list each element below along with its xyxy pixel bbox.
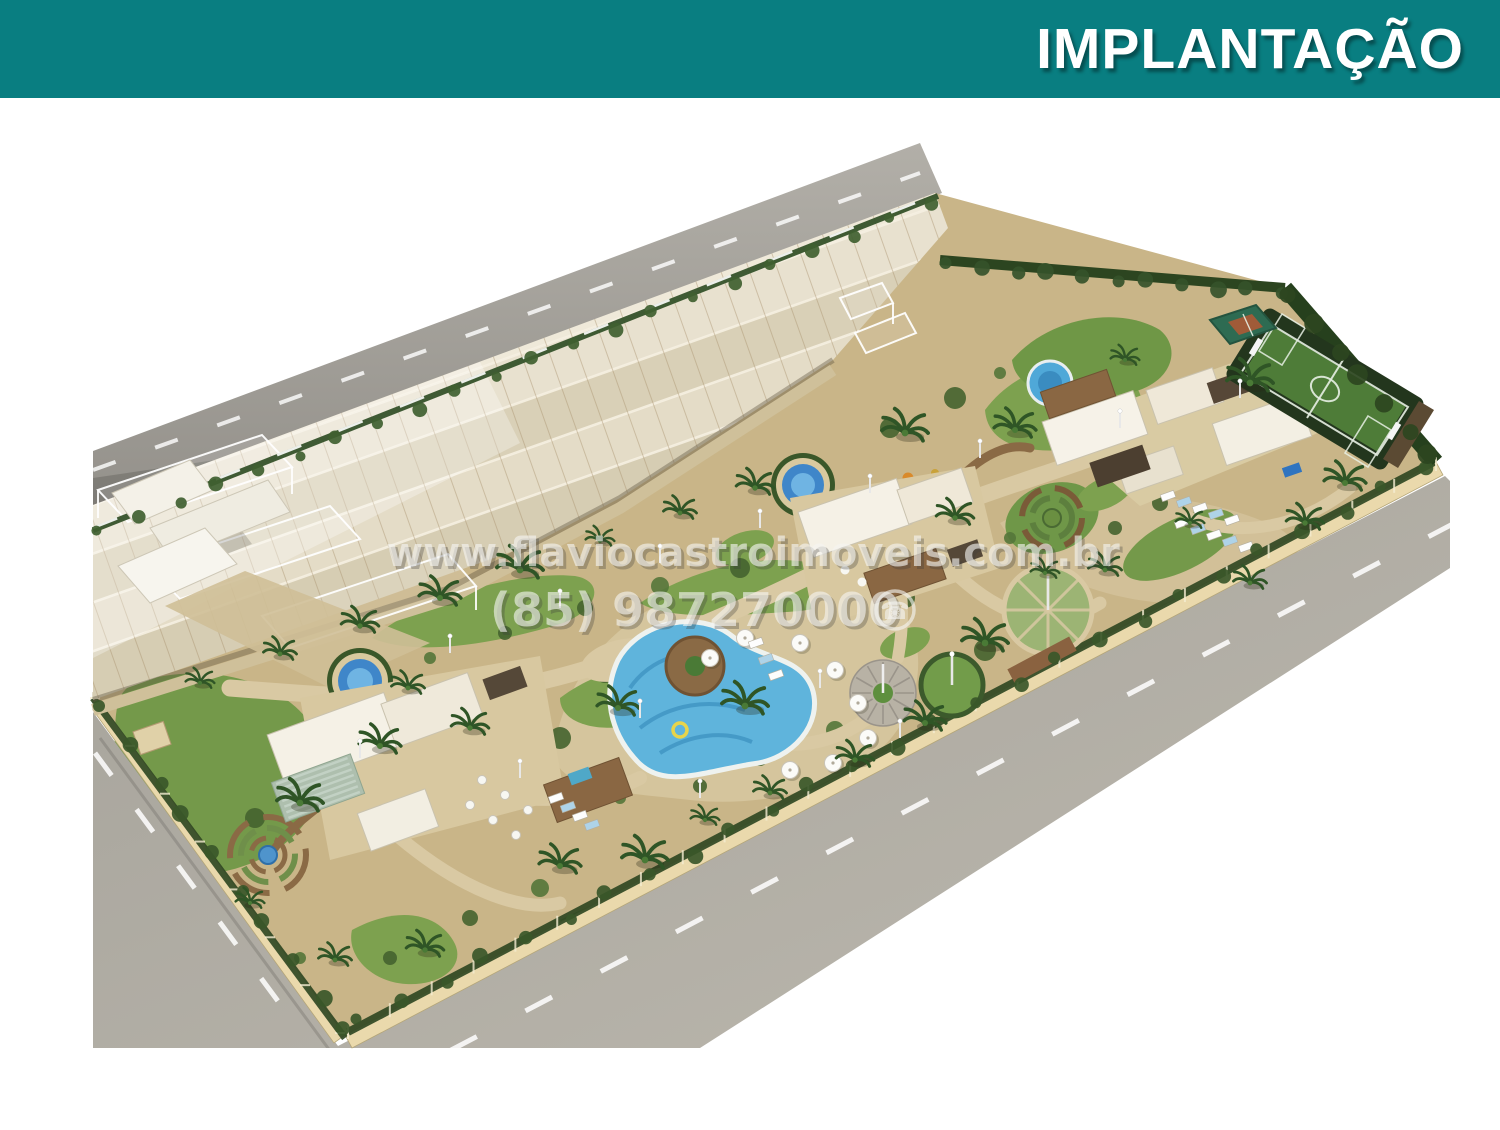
bush-icon	[394, 994, 409, 1009]
title-bar: IMPLANTAÇÃO	[0, 0, 1500, 98]
bush-icon	[176, 497, 187, 508]
watermark-url: www.flaviocastroimoveis.com.br	[386, 530, 1120, 576]
lamp	[638, 699, 642, 703]
bush-icon	[492, 372, 502, 382]
lamp	[518, 759, 522, 763]
bush-icon	[799, 777, 814, 792]
bush-icon	[768, 806, 779, 817]
bush-icon	[1280, 287, 1296, 303]
bush-icon	[1375, 394, 1393, 412]
bush-icon	[448, 384, 460, 396]
bush-icon	[940, 257, 952, 269]
bush-icon	[925, 197, 939, 211]
bush-icon	[890, 740, 906, 756]
bush-icon	[970, 697, 981, 708]
lamp	[358, 739, 362, 743]
patio-table	[489, 816, 498, 825]
bush-icon	[1139, 615, 1152, 628]
bush-icon	[1341, 506, 1354, 519]
lamp	[758, 509, 762, 513]
bush-icon	[123, 737, 139, 753]
bush-icon	[1304, 314, 1324, 334]
shrub-icon	[462, 910, 478, 926]
shrub-icon	[424, 652, 436, 664]
gazebo-plaza	[850, 660, 916, 726]
bush-icon	[328, 430, 342, 444]
bush-icon	[172, 805, 189, 822]
lamp	[898, 719, 902, 723]
lamp	[818, 669, 822, 673]
bush-icon	[609, 323, 624, 338]
lamp	[448, 634, 452, 638]
bush-icon	[764, 259, 775, 270]
bush-icon	[252, 464, 264, 476]
page-title: IMPLANTAÇÃO	[0, 0, 1500, 98]
bush-icon	[91, 526, 101, 536]
umbrella-pole	[833, 668, 836, 671]
spiral-garden-west	[230, 817, 306, 893]
site-plan-render: www.flaviocastroimoveis.com.br www.flavi…	[0, 98, 1500, 1125]
bush-icon	[524, 351, 538, 365]
bush-icon	[1138, 272, 1154, 288]
umbrella-pole	[831, 761, 834, 764]
bush-icon	[1375, 481, 1386, 492]
bush-icon	[974, 260, 990, 276]
bush-icon	[1173, 589, 1184, 600]
bush-icon	[848, 231, 860, 243]
bush-icon	[644, 868, 656, 880]
bush-icon	[566, 914, 577, 925]
bush-icon	[1347, 364, 1368, 385]
bush-icon	[1403, 424, 1419, 440]
patio-table	[466, 801, 475, 810]
patio-table	[512, 831, 521, 840]
bush-icon	[688, 292, 698, 302]
bush-icon	[1012, 266, 1025, 279]
bush-icon	[1332, 344, 1349, 361]
bush-icon	[155, 777, 168, 790]
umbrella-pole	[856, 701, 859, 704]
lamp	[1238, 379, 1242, 383]
unit-divider	[30, 504, 99, 698]
lamp	[1118, 409, 1122, 413]
bush-icon	[721, 823, 734, 836]
bush-icon	[1238, 281, 1252, 295]
bush-icon	[1113, 275, 1125, 287]
bush-icon	[316, 990, 333, 1007]
bush-icon	[295, 451, 305, 461]
bush-icon	[568, 338, 579, 349]
bush-icon	[1175, 278, 1188, 291]
bush-icon	[687, 848, 703, 864]
shrub-icon	[994, 367, 1006, 379]
shrub-icon	[944, 387, 966, 409]
umbrella-pole	[788, 768, 791, 771]
lamp	[978, 439, 982, 443]
bush-icon	[644, 305, 656, 317]
bush-icon	[1075, 269, 1089, 283]
phone-icon-glyph: ☎	[880, 597, 910, 625]
bush-icon	[351, 1014, 362, 1025]
bush-icon	[286, 953, 299, 966]
bush-icon	[472, 948, 488, 964]
bush-icon	[1048, 652, 1060, 664]
bush-icon	[519, 931, 532, 944]
patio-table	[501, 791, 510, 800]
lawn-circle	[1004, 566, 1092, 654]
bush-icon	[884, 213, 894, 223]
bush-icon	[1210, 281, 1227, 298]
lamp	[698, 779, 702, 783]
bush-icon	[93, 700, 105, 712]
fountain-water-inner	[791, 473, 815, 497]
bush-icon	[1037, 263, 1054, 280]
bush-icon	[1014, 677, 1029, 692]
lamp	[868, 474, 872, 478]
watermark-phone: (85) 987270000	[490, 583, 900, 637]
bush-icon	[204, 845, 218, 859]
bush-icon	[372, 418, 383, 429]
shrub-icon	[383, 951, 397, 965]
bush-icon	[441, 977, 453, 989]
shrub-icon	[531, 879, 549, 897]
bush-icon	[805, 243, 820, 258]
render-area: www.flaviocastroimoveis.com.br www.flavi…	[0, 98, 1500, 1125]
bush-icon	[132, 510, 146, 524]
bush-icon	[1092, 632, 1108, 648]
spiral-pond	[259, 846, 277, 864]
bush-icon	[1418, 444, 1438, 464]
bush-icon	[208, 477, 223, 492]
umbrella-pole	[708, 656, 711, 659]
patio-table	[524, 806, 533, 815]
umbrella-pole	[798, 641, 801, 644]
bush-icon	[728, 277, 742, 291]
bush-icon	[335, 1021, 349, 1035]
bush-icon	[597, 885, 612, 900]
umbrella-pole	[866, 736, 869, 739]
patio-table	[478, 776, 487, 785]
bush-icon	[254, 913, 270, 929]
bush-icon	[1250, 543, 1262, 555]
bush-icon	[1216, 569, 1231, 584]
bush-icon	[412, 402, 427, 417]
